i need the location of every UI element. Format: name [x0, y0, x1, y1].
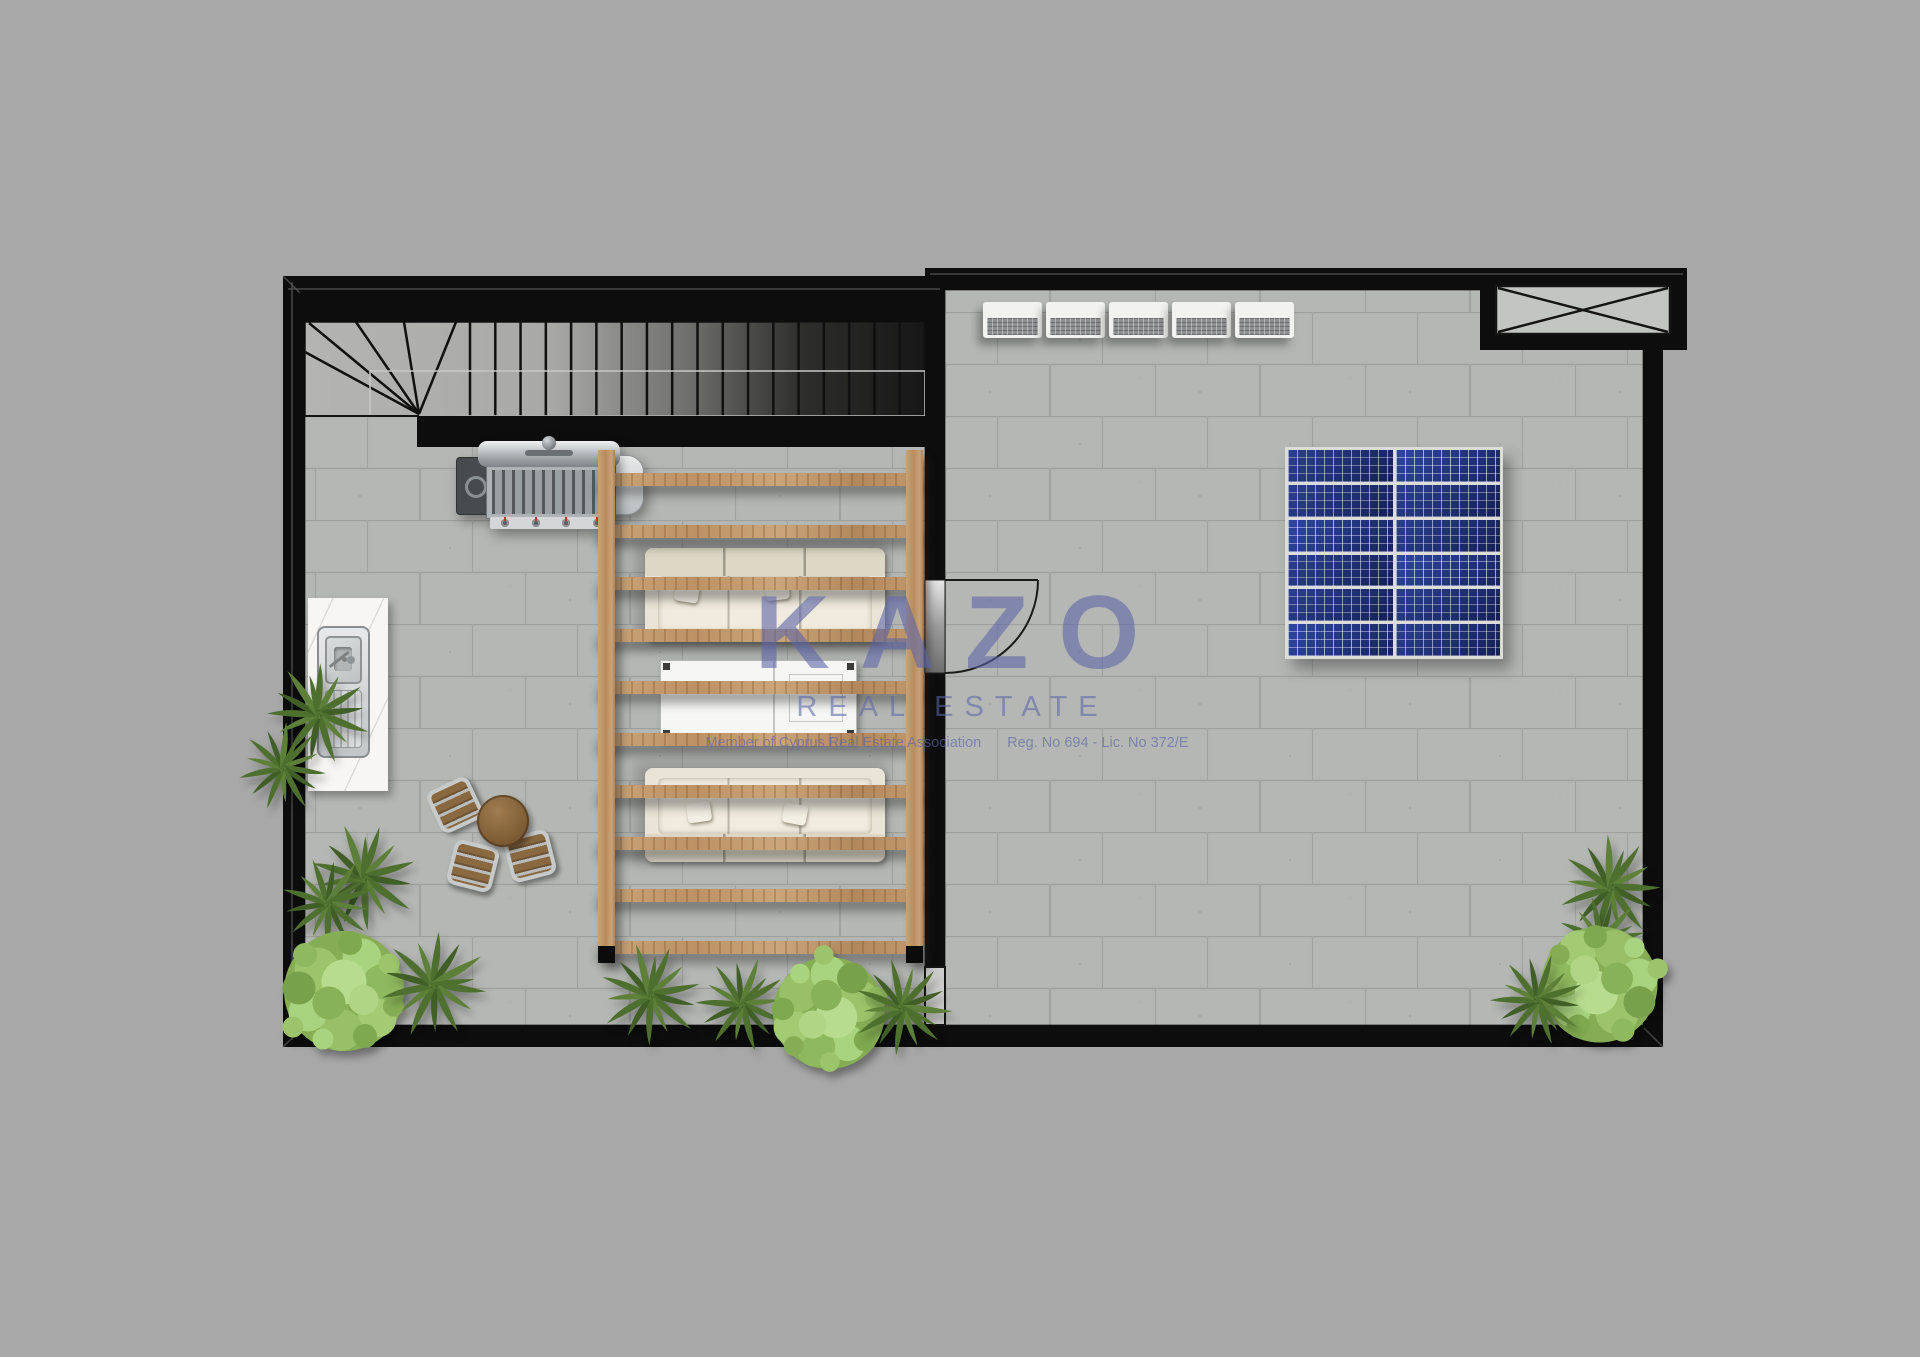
hvac-unit	[1109, 302, 1168, 338]
table-leg	[847, 663, 854, 670]
hvac-grille	[987, 318, 1038, 335]
pergola-beam	[598, 785, 923, 798]
pergola-beam	[598, 629, 923, 642]
grill-knob	[532, 519, 540, 527]
grill-side-knob	[465, 476, 487, 498]
grill-control-knobs	[490, 517, 612, 529]
table-leg	[663, 663, 670, 670]
plant-spiky	[595, 940, 705, 1050]
hvac-unit	[983, 302, 1042, 338]
bistro-table	[477, 795, 529, 847]
solar-module	[1396, 624, 1501, 656]
roof-hatch	[1496, 286, 1670, 334]
grill-grate	[492, 470, 610, 514]
throw-pillow	[781, 802, 808, 826]
solar-module	[1288, 520, 1393, 552]
pergola-beam	[598, 889, 923, 902]
plant-spiky	[850, 955, 955, 1060]
plant-spiky	[1488, 950, 1588, 1050]
throw-pillow	[686, 800, 713, 823]
coffee-table	[660, 660, 857, 740]
hvac-grille	[1113, 318, 1164, 335]
solar-module	[1288, 450, 1393, 482]
door-leaf	[925, 580, 945, 673]
hvac-grille	[1239, 318, 1290, 335]
sofa-backrest	[645, 548, 885, 576]
hvac-unit	[1172, 302, 1231, 338]
chair-slats	[450, 843, 496, 889]
coffee-table-divider	[773, 661, 775, 739]
divider-wall-upper	[925, 272, 945, 580]
left-terrace-top-wall	[283, 276, 945, 322]
pergola-rail-right	[906, 450, 923, 962]
hvac-unit	[1235, 302, 1294, 338]
bistro-chair	[424, 774, 485, 835]
plant-spiky	[376, 927, 491, 1042]
solar-module	[1288, 485, 1393, 517]
solar-module	[1396, 589, 1501, 621]
solar-module	[1288, 624, 1393, 656]
solar-module	[1396, 520, 1501, 552]
pergola-beam	[598, 577, 923, 590]
grill-knob	[501, 519, 509, 527]
hvac-grille	[1050, 318, 1101, 335]
chair-slats	[430, 780, 480, 830]
grill-body	[486, 465, 616, 519]
solar-module	[1396, 485, 1501, 517]
grill-lid-cap	[542, 436, 556, 450]
pergola-rail-left	[598, 450, 615, 962]
solar-module	[1288, 589, 1393, 621]
pergola-beam	[598, 733, 923, 746]
divider-wall-lower	[925, 673, 945, 967]
sofa-top	[645, 548, 885, 642]
hvac-grille	[1176, 318, 1227, 335]
solar-module	[1288, 555, 1393, 587]
pergola-beam	[598, 681, 923, 694]
grill-lid-handle	[525, 450, 573, 456]
plant-spiky	[235, 720, 330, 815]
grill-knob	[562, 519, 570, 527]
bistro-set	[425, 775, 570, 895]
pergola-beam	[598, 525, 923, 538]
solar-panel-array	[1285, 447, 1503, 659]
floor-plan-canvas: KAZO REAL ESTATE Member of Cyprus Real E…	[0, 0, 1920, 1357]
hvac-unit	[1046, 302, 1105, 338]
pergola	[598, 450, 923, 965]
solar-module	[1396, 450, 1501, 482]
pergola-beam	[598, 837, 923, 850]
bistro-chair	[445, 838, 501, 894]
pergola-beam	[598, 473, 923, 486]
solar-module	[1396, 555, 1501, 587]
hvac-unit-row	[983, 302, 1294, 338]
